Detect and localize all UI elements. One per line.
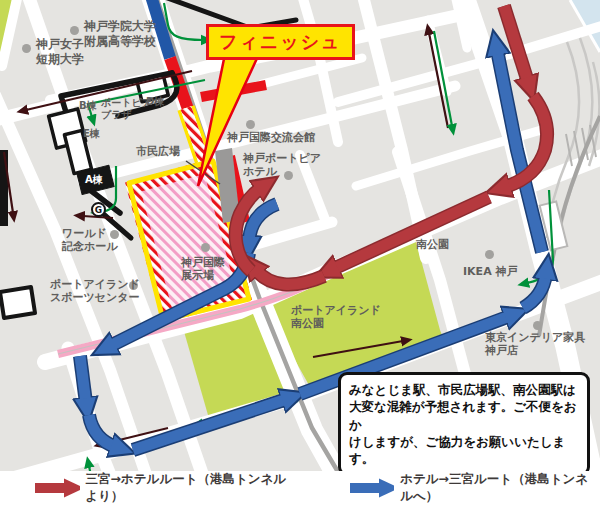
label-e-wing: E棟 <box>83 128 100 140</box>
legend-blue-route: ホテル→三宮ルート（港島トンネルへ） <box>345 471 600 505</box>
notice-line: けしますが、ご協力をお願いいたします。 <box>349 433 579 468</box>
legend-blue-label: ホテル→三宮ルート（港島トンネルへ） <box>400 471 600 505</box>
congestion-notice: みなとじま駅、市民広場駅、南公園駅は 大変な混雑が予想されます。ご不便をおか け… <box>338 372 590 476</box>
red-arrow-icon <box>30 478 80 498</box>
label-portopia-hotel: 神戸ポートピア ホテル <box>243 152 321 179</box>
notice-line: 大変な混雑が予想されます。ご不便をおか <box>349 398 579 433</box>
label-shimin-hiroba: 市民広場 <box>136 145 180 158</box>
label-a-wing: A棟 <box>85 174 103 186</box>
poi-dot <box>485 250 494 259</box>
label-gate-g: G <box>91 202 106 217</box>
building-west-edge <box>0 150 8 226</box>
finish-callout: フィニッシュ <box>206 24 355 60</box>
poi-dot <box>533 321 542 330</box>
label-world-memorial-hall: ワールド 記念ホール <box>62 227 118 254</box>
poi-dot <box>246 120 255 129</box>
blue-route-arrow <box>80 356 86 403</box>
legend-red-route: 三宮→ホテルルート（港島トンネルより） <box>30 471 297 505</box>
label-b-wing: B棟 <box>79 100 97 112</box>
poi-dot <box>201 243 210 252</box>
legend-red-label: 三宮→ホテルルート（港島トンネルより） <box>86 471 297 505</box>
blue-arrow-icon <box>345 478 395 498</box>
route-map: フィニッシュ 神戸女子 短期大学神戸学院大学 附属高等学校B棟ポートピア プラザ… <box>0 0 600 505</box>
label-tokyo-interior: 東京インテリア家具 神戸店 <box>485 331 585 358</box>
label-portopia-plaza: ポートピア プラザ <box>101 97 152 121</box>
label-d-wing: D棟 <box>146 96 164 108</box>
label-ikea-kobe: IKEA 神戸 <box>463 265 517 278</box>
building-world-hall <box>0 287 35 318</box>
poi-dot <box>22 44 31 53</box>
label-kokusai-tenjijo: 神戸国際 展示場 <box>181 256 225 283</box>
label-pi-minami-koen: ポートアイランド 南公園 <box>291 304 381 331</box>
label-kobe-gakuin-highschool: 神戸学院大学 附属高等学校 <box>84 19 156 48</box>
poi-dot <box>70 26 79 35</box>
legend: 三宮→ホテルルート（港島トンネルより） ホテル→三宮ルート（港島トンネルへ） <box>0 471 600 505</box>
label-minami-koen: 南公園 <box>416 238 449 251</box>
label-kokusai-koryu-kaikan: 神戸国際交流会館 <box>227 131 315 144</box>
label-sports-center: ポートアイランド スポーツセンター <box>50 278 140 305</box>
label-kobe-womens-college: 神戸女子 短期大学 <box>36 37 84 66</box>
notice-line: みなとじま駅、市民広場駅、南公園駅は <box>349 381 579 398</box>
